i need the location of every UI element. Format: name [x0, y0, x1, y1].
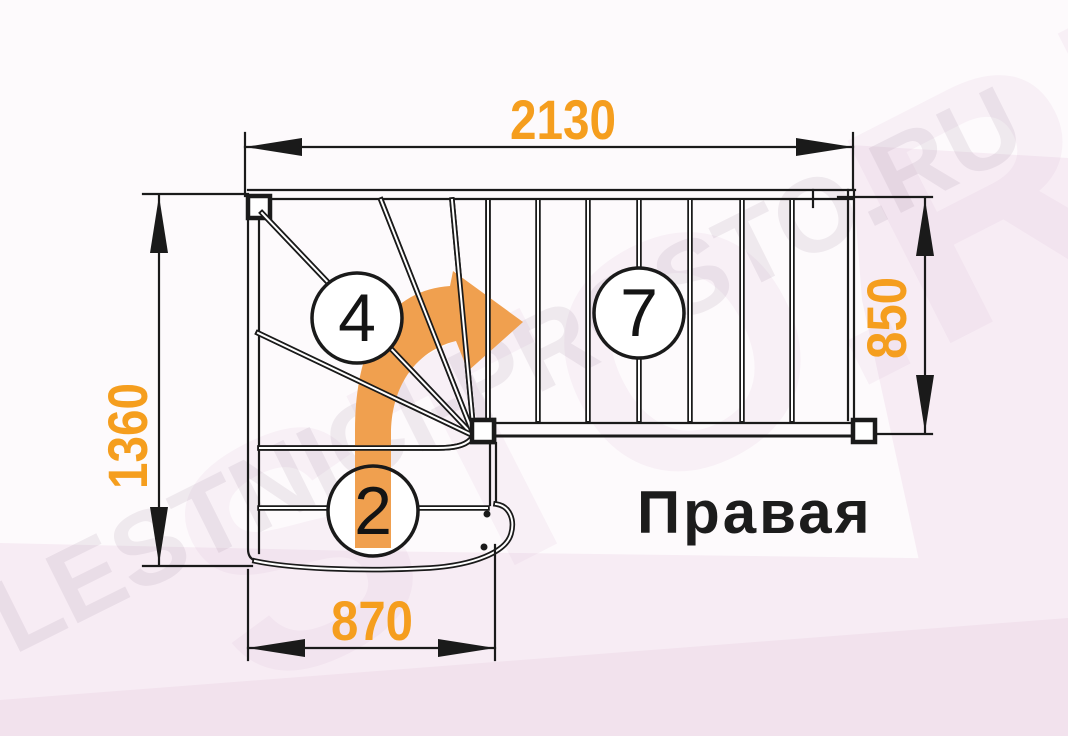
newel-post-center-overlay: [472, 420, 494, 442]
step-circle-7: 7: [594, 268, 684, 358]
step-number-winder: 4: [338, 280, 376, 356]
dowel-dot-upper: [484, 511, 491, 518]
newel-post-right: [853, 420, 875, 442]
step-circle-4: 4: [312, 273, 402, 363]
direction-label: Правая: [637, 479, 873, 546]
stair-plan-page: STO.RU LESTNICI-PROSTO.RU: [0, 0, 1068, 736]
dim-left-value: 1360: [96, 383, 159, 489]
dowel-dot-lower: [481, 544, 488, 551]
dim-right-value: 850: [855, 277, 918, 359]
step-number-upper-flight: 7: [620, 275, 658, 351]
stair-plan-drawing: STO.RU LESTNICI-PROSTO.RU: [0, 0, 1068, 736]
dim-bottom-value: 870: [331, 589, 413, 652]
step-number-lower-flight: 2: [354, 473, 392, 549]
dim-top-value: 2130: [510, 88, 616, 151]
